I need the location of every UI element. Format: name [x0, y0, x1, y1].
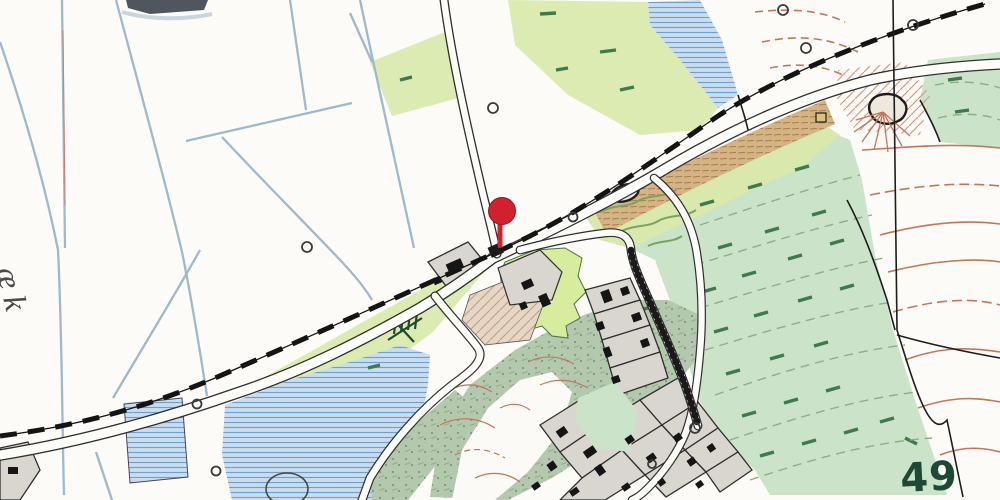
- pond: [266, 473, 308, 500]
- plot-number-label: 49: [899, 453, 959, 500]
- map-canvas[interactable]: æk 49: [0, 0, 1000, 500]
- hut: [816, 113, 826, 122]
